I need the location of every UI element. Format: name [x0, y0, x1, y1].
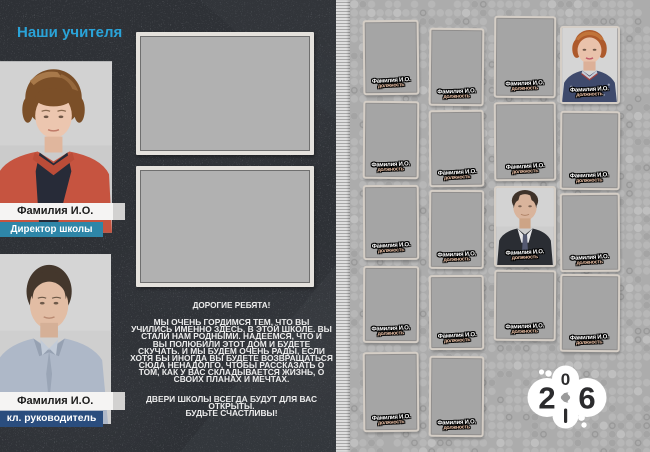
svg-text:6: 6 [578, 381, 595, 416]
svg-text:0: 0 [560, 370, 569, 389]
svg-text:2: 2 [538, 381, 555, 416]
